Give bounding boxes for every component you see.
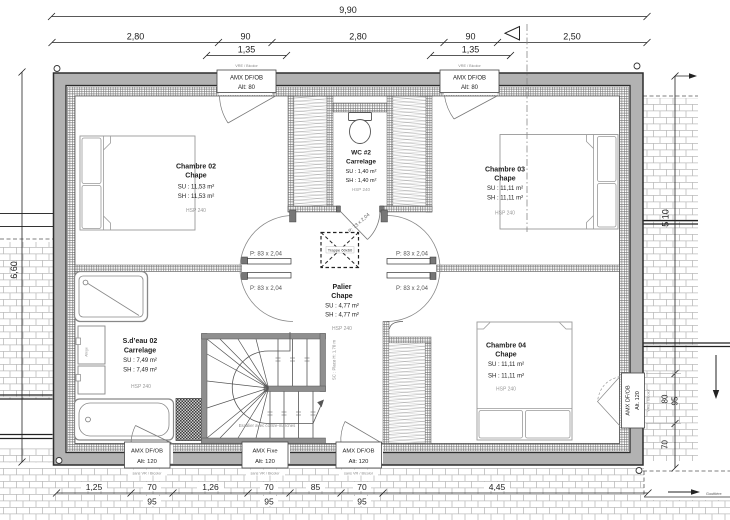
svg-text:P: 83 x 2,04: P: 83 x 2,04: [250, 252, 283, 258]
svg-text:SH : 11,11 m²: SH : 11,11 m²: [488, 374, 524, 380]
svg-text:sans VR / Bicolor: sans VR / Bicolor: [344, 472, 374, 476]
svg-text:95: 95: [264, 497, 274, 507]
svg-text:sans VR / Bicolor: sans VR / Bicolor: [250, 472, 280, 476]
svg-text:Carrelage: Carrelage: [346, 159, 376, 166]
svg-text:VRE / Bicolor: VRE / Bicolor: [235, 64, 258, 68]
svg-text:Alt: 80: Alt: 80: [238, 85, 256, 91]
svg-text:70: 70: [147, 482, 157, 492]
svg-text:HSP 240: HSP 240: [186, 208, 206, 214]
svg-text:90: 90: [240, 32, 250, 42]
svg-text:Chambre 02: Chambre 02: [176, 164, 216, 171]
svg-text:VRE / Bicolor: VRE / Bicolor: [647, 388, 651, 411]
svg-text:SH : 1,40 m²: SH : 1,40 m²: [346, 178, 377, 184]
svg-text:SU : 11,11 m²: SU : 11,11 m²: [487, 186, 523, 192]
svg-text:6,60: 6,60: [9, 261, 19, 279]
svg-text:2,50: 2,50: [563, 32, 581, 42]
svg-text:Chambre 03: Chambre 03: [485, 167, 525, 174]
svg-text:AMX DF/OB: AMX DF/OB: [230, 76, 263, 82]
svg-text:Escalier avec contre-marches: Escalier avec contre-marches: [239, 423, 296, 428]
svg-text:SC : Placo H: 1,70 m: SC : Placo H: 1,70 m: [332, 340, 337, 381]
svg-text:SH : 11,11 m²: SH : 11,11 m²: [487, 196, 523, 202]
svg-text:HSP 240: HSP 240: [496, 387, 516, 393]
svg-text:P: 83 x 2,04: P: 83 x 2,04: [250, 286, 283, 292]
svg-text:70: 70: [357, 482, 367, 492]
svg-text:Allège: Allège: [85, 347, 89, 357]
svg-text:S.d’eau 02: S.d’eau 02: [123, 338, 158, 345]
svg-text:AMX DF/OB: AMX DF/OB: [626, 385, 632, 416]
svg-text:Chambre 04: Chambre 04: [486, 343, 526, 350]
svg-text:Alt: 120: Alt: 120: [137, 459, 157, 465]
svg-text:Trappe 60x60: Trappe 60x60: [328, 248, 353, 253]
svg-text:70: 70: [264, 482, 274, 492]
svg-text:WC #2: WC #2: [351, 150, 371, 157]
svg-text:sans VR / Bicolor: sans VR / Bicolor: [132, 472, 162, 476]
svg-text:HSP 240: HSP 240: [332, 326, 352, 332]
svg-text:90: 90: [465, 32, 475, 42]
svg-text:SU : 7,49 m²: SU : 7,49 m²: [123, 358, 157, 364]
svg-text:AMX DF/OB: AMX DF/OB: [453, 76, 486, 82]
svg-text:P: 83 x 2,04: P: 83 x 2,04: [396, 286, 429, 292]
svg-text:Chape: Chape: [331, 293, 353, 300]
svg-text:VRE / Bicolor: VRE / Bicolor: [458, 64, 481, 68]
svg-text:SU : 11,53 m²: SU : 11,53 m²: [178, 185, 215, 191]
svg-text:Gouttière: Gouttière: [706, 492, 722, 496]
svg-text:SU : 11,11 m²: SU : 11,11 m²: [488, 362, 524, 368]
svg-text:SU : 1,40 m²: SU : 1,40 m²: [346, 169, 377, 175]
svg-text:SH : 4,77 m²: SH : 4,77 m²: [325, 313, 359, 319]
svg-text:1,25: 1,25: [86, 482, 103, 492]
svg-text:80: 80: [661, 394, 670, 403]
svg-text:85: 85: [311, 482, 321, 492]
svg-text:HSP 240: HSP 240: [495, 211, 515, 217]
svg-text:95: 95: [671, 396, 680, 405]
svg-text:Alt: 120: Alt: 120: [255, 459, 275, 465]
svg-text:4,45: 4,45: [489, 482, 506, 492]
svg-text:1,26: 1,26: [202, 482, 219, 492]
svg-text:1,35: 1,35: [462, 45, 480, 55]
svg-text:SH : 11,53 m²: SH : 11,53 m²: [178, 194, 215, 200]
svg-text:5,10: 5,10: [661, 209, 671, 227]
svg-text:P: 83 x 2,04: P: 83 x 2,04: [396, 252, 429, 258]
svg-text:Chape: Chape: [185, 173, 207, 180]
svg-text:HSP 240: HSP 240: [352, 187, 370, 192]
svg-text:Palier: Palier: [332, 284, 351, 291]
svg-text:Carrelage: Carrelage: [124, 348, 156, 355]
svg-text:SH : 7,49 m²: SH : 7,49 m²: [123, 368, 157, 374]
svg-text:95: 95: [357, 497, 367, 507]
svg-text:95: 95: [147, 497, 157, 507]
svg-text:HSP 240: HSP 240: [131, 384, 151, 390]
svg-text:Alt: 120: Alt: 120: [349, 459, 369, 465]
svg-text:SU : 4,77 m²: SU : 4,77 m²: [325, 304, 359, 310]
svg-text:AMX Fixe: AMX Fixe: [252, 449, 277, 455]
svg-text:Chape: Chape: [494, 176, 516, 183]
svg-text:Alt. 120: Alt. 120: [635, 391, 641, 410]
svg-text:AMX DF/OB: AMX DF/OB: [131, 449, 163, 455]
svg-text:1,35: 1,35: [238, 45, 256, 55]
svg-text:2,80: 2,80: [127, 32, 145, 42]
svg-text:2,80: 2,80: [349, 32, 367, 42]
svg-text:Alt: 80: Alt: 80: [461, 85, 479, 91]
svg-text:Chape: Chape: [495, 352, 517, 359]
svg-text:70: 70: [661, 440, 670, 449]
svg-text:9,90: 9,90: [339, 5, 357, 15]
svg-text:AMX DF/OB: AMX DF/OB: [343, 449, 375, 455]
